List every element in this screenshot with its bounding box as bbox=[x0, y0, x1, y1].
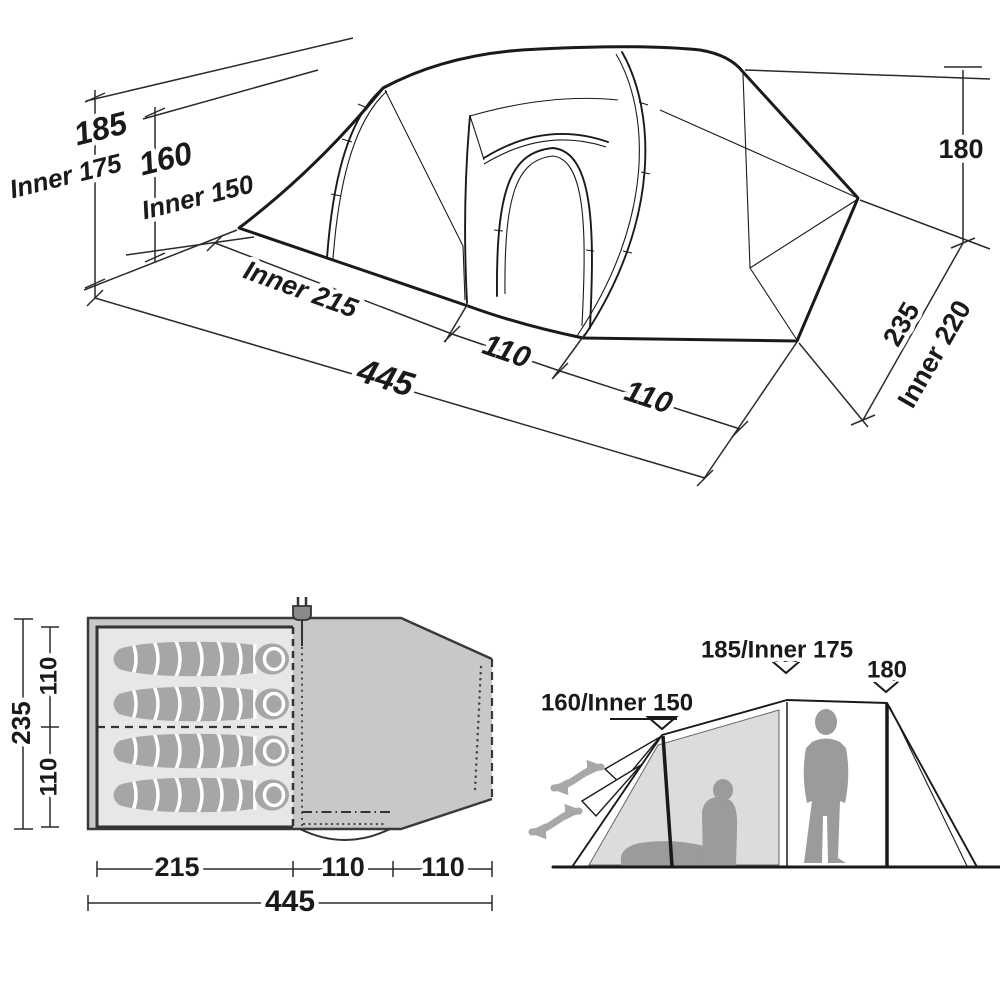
plan-label-porch-length: 110 bbox=[321, 852, 365, 882]
plan-label-width-upper: 110 bbox=[35, 657, 62, 696]
plan-label-front-length: 110 bbox=[421, 852, 465, 882]
plan-label-inner-length: 215 bbox=[154, 852, 199, 882]
side-label-rear-height: 180 bbox=[867, 656, 907, 683]
side-label-main-height: 185/Inner 175 bbox=[701, 636, 853, 663]
plan-label-width-total: 235 bbox=[6, 701, 36, 744]
plan-label-width-lower: 110 bbox=[35, 758, 62, 797]
iso-label-rear-height: 180 bbox=[938, 134, 983, 164]
plan-label-total-length: 445 bbox=[265, 885, 315, 918]
side-label-front-height: 160/Inner 150 bbox=[541, 689, 693, 716]
tent-dimensions-diagram: 185 Inner 175 160 Inner 150 Inner 215 44… bbox=[0, 0, 1000, 1000]
diagram-canvas: 185 Inner 175 160 Inner 150 Inner 215 44… bbox=[0, 0, 1000, 1000]
